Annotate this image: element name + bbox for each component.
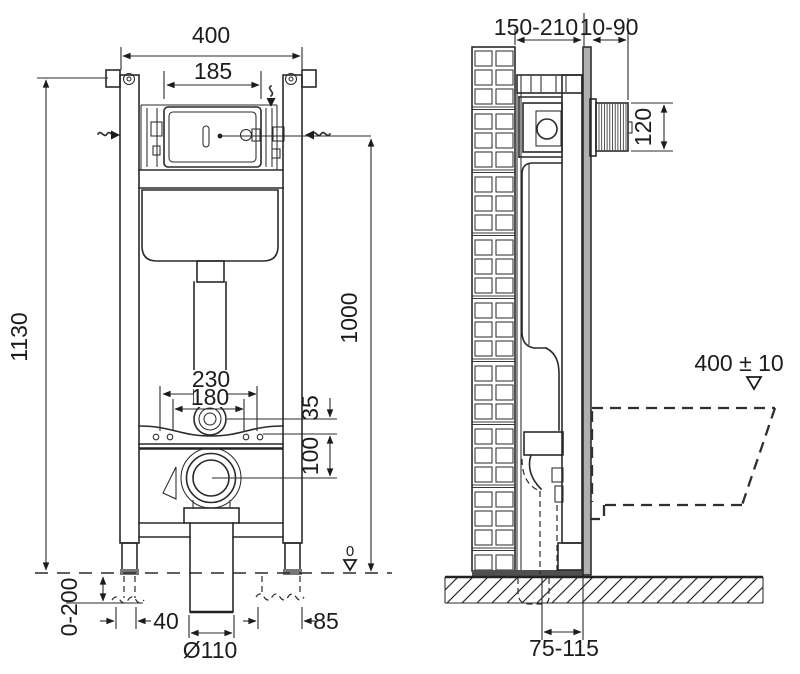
dim-unit-height: 120 bbox=[630, 108, 656, 146]
dim-frame-depth: 150-210 bbox=[494, 14, 578, 40]
dim-wall-finish: 10-90 bbox=[580, 14, 639, 40]
dim-right-85: 85 bbox=[313, 608, 339, 634]
dim-drain-wall-offset: 75-115 bbox=[529, 635, 599, 661]
flush-actuator-slot bbox=[203, 126, 209, 147]
front-view: 400 185 1130 1000 230 180 35 100 0-200 4… bbox=[6, 22, 392, 663]
wall-bracket-right bbox=[302, 70, 316, 87]
dim-access-width: 185 bbox=[194, 58, 232, 84]
fixing-hole bbox=[153, 434, 159, 440]
lower-crossbar bbox=[139, 523, 283, 537]
level-triangle-icon bbox=[344, 560, 356, 570]
cistern-profile bbox=[518, 97, 563, 604]
frame-profile bbox=[517, 75, 582, 570]
wall-bracket-left bbox=[106, 70, 120, 87]
frame-foot-left bbox=[122, 543, 137, 572]
fixing-hole bbox=[167, 434, 173, 440]
dim-offset-100: 100 bbox=[297, 437, 323, 475]
frame-foot-right bbox=[285, 543, 300, 572]
dim-left-40: 40 bbox=[153, 608, 179, 634]
fill-valve bbox=[537, 119, 557, 139]
cistern-access-box bbox=[141, 105, 284, 170]
floor-slab bbox=[445, 577, 763, 603]
water-inlet-arrow-right-icon bbox=[305, 131, 330, 140]
zero-label: 0 bbox=[346, 543, 354, 560]
side-extension-lines bbox=[515, 13, 673, 640]
installation-frame-drawing: 400 185 1130 1000 230 180 35 100 0-200 4… bbox=[0, 0, 800, 674]
side-view: 150-210 10-90 120 400 ± 10 75-115 bbox=[445, 13, 784, 661]
dim-drain-diameter: Ø110 bbox=[183, 637, 238, 663]
foot-plate-right bbox=[283, 569, 302, 575]
dim-bolt-spacing: 180 bbox=[191, 384, 229, 410]
masonry-wall bbox=[472, 47, 515, 571]
outlet-bracket bbox=[524, 432, 563, 455]
base-plate bbox=[472, 570, 584, 576]
dim-pan-rim-height: 400 ± 10 bbox=[694, 350, 783, 376]
water-inlet-arrow-top-icon bbox=[267, 86, 276, 107]
front-extension-lines bbox=[37, 47, 371, 638]
wall-hung-pan-outline bbox=[590, 408, 775, 519]
dim-leg-adjust: 0-200 bbox=[56, 578, 82, 637]
drain-collar bbox=[184, 508, 239, 523]
fixing-hole bbox=[257, 434, 263, 440]
flush-actuator-unit bbox=[590, 99, 632, 156]
top-bracket bbox=[517, 75, 582, 93]
dim-overall-width: 400 bbox=[192, 22, 230, 48]
foot-profile bbox=[558, 543, 582, 570]
technical-drawing-canvas: 400 185 1130 1000 230 180 35 100 0-200 4… bbox=[0, 0, 800, 674]
level-triangle-icon bbox=[747, 377, 761, 389]
fixing-hole bbox=[243, 434, 249, 440]
dim-frame-height: 1130 bbox=[6, 312, 32, 361]
foot-plate-left bbox=[120, 569, 139, 575]
drain-elbow bbox=[163, 448, 241, 612]
zero-level-marker: 0 bbox=[344, 543, 356, 570]
front-rail-profile bbox=[562, 75, 582, 543]
tank-outlet-stub bbox=[197, 261, 224, 282]
dim-flush-center-height: 1000 bbox=[336, 292, 362, 343]
dim-offset-35: 35 bbox=[297, 395, 323, 421]
water-inlet-arrow-left-icon bbox=[98, 131, 120, 140]
